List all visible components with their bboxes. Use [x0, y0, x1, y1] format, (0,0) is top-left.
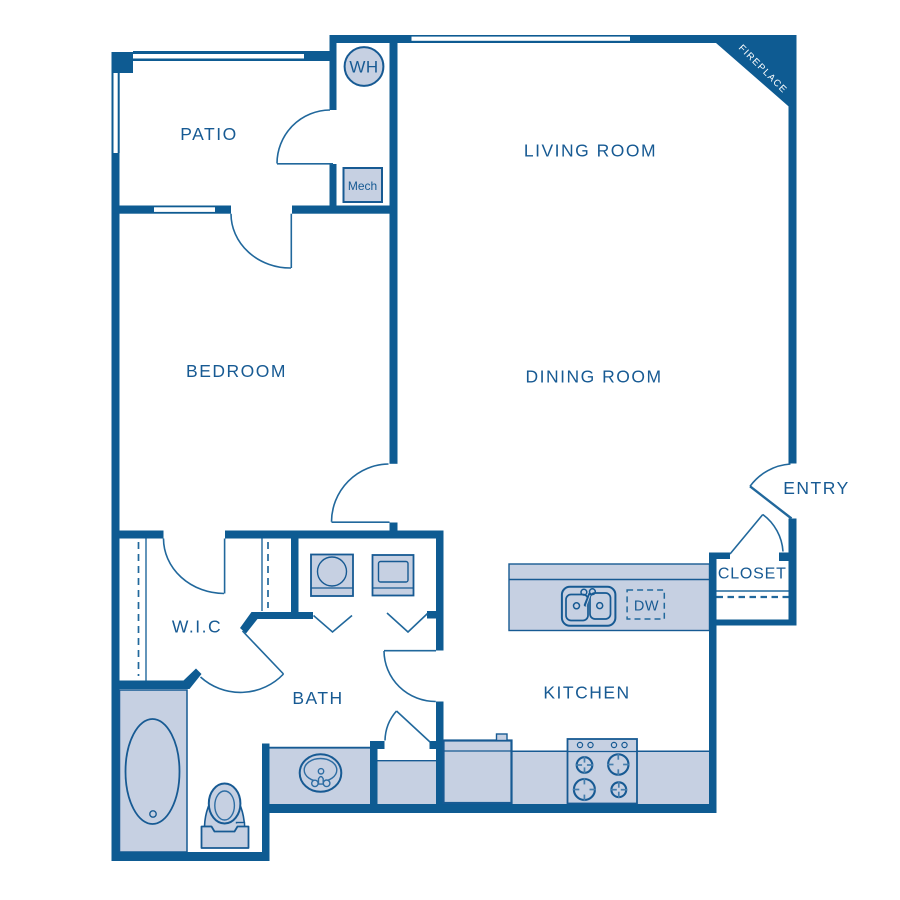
svg-text:CLOSET: CLOSET: [718, 566, 787, 583]
svg-text:ENTRY: ENTRY: [783, 478, 850, 498]
svg-text:WH: WH: [349, 58, 378, 77]
svg-text:BEDROOM: BEDROOM: [186, 361, 287, 381]
svg-text:PATIO: PATIO: [180, 124, 237, 144]
svg-text:DW: DW: [634, 599, 659, 615]
svg-text:DINING ROOM: DINING ROOM: [525, 367, 662, 387]
svg-text:Mech: Mech: [348, 179, 377, 193]
svg-text:BATH: BATH: [292, 688, 343, 708]
svg-text:W.I.C: W.I.C: [172, 617, 222, 637]
svg-text:KITCHEN: KITCHEN: [543, 683, 630, 703]
svg-text:LIVING ROOM: LIVING ROOM: [524, 141, 657, 161]
